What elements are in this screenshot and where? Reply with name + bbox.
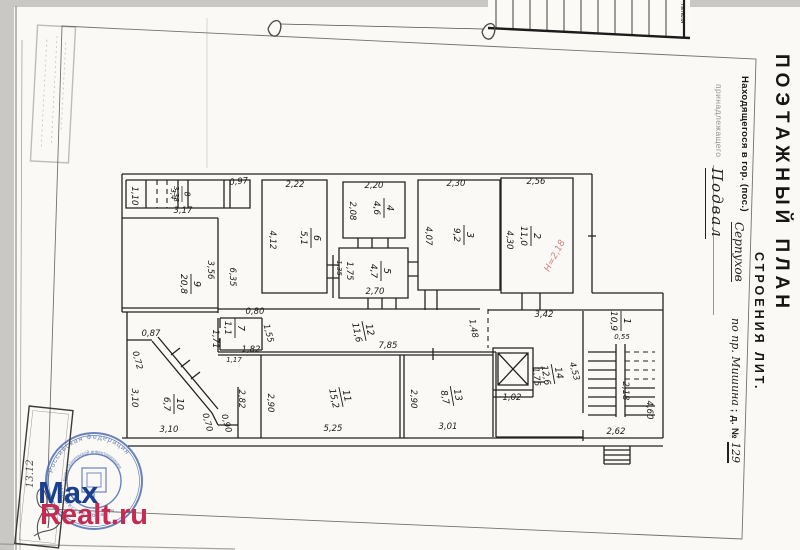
dimension-label: 3,10 — [160, 425, 179, 435]
dimension-label: Н=2,18 — [543, 238, 568, 273]
svg-text:2: 2 — [531, 233, 542, 239]
dimension-label: 2,20 — [365, 181, 384, 191]
watermark-line2: Realt.ru — [40, 501, 148, 530]
dimension-label: 7,85 — [379, 341, 398, 351]
dimension-label: 2,30 — [447, 179, 466, 189]
dimension-label: 4,12 — [267, 231, 277, 250]
dimension-label: 1,10 — [129, 187, 139, 206]
room-label-2: 211,0 — [518, 226, 542, 246]
svg-text:3,38: 3,38 — [172, 186, 181, 202]
location-value: Серпухов — [731, 222, 746, 282]
house-label: ; д. № — [729, 406, 740, 439]
dimension-label: 5,25 — [324, 424, 343, 434]
dimension-label: 1,75 — [344, 262, 354, 281]
room-label-5: 54,7 — [368, 261, 392, 281]
dimension-label: 0,90 — [219, 413, 234, 434]
dimension-label: 2,90 — [265, 394, 275, 413]
scanned-floorplan-page: { "document": { "title": "ПОЭТАЖНЫЙ ПЛАН… — [0, 0, 800, 550]
dimension-label: 1,17 — [226, 356, 242, 364]
dimension-label: 1,82 — [242, 345, 261, 355]
owner-label: принадлежащего — [714, 84, 724, 157]
floor-label: Подвал — [705, 168, 726, 239]
address-value: по пр. Мишина — [729, 318, 742, 406]
svg-text:3: 3 — [464, 232, 475, 238]
dimension-label: 4,60 — [644, 401, 654, 420]
svg-text:20,8: 20,8 — [178, 274, 188, 294]
room-label-4: 44,6 — [371, 198, 395, 218]
dimension-label: 4,53 — [567, 361, 582, 382]
dimension-label: 2,90 — [408, 390, 418, 409]
house-value: 129 — [727, 442, 742, 463]
dimension-label: 1,71 — [210, 330, 220, 349]
dimension-label: 0,72 — [130, 350, 145, 371]
room-label-11: 1115,2 — [326, 385, 354, 410]
location-label: Находящегося в гор. (пос.) — [739, 76, 750, 212]
svg-text:7: 7 — [235, 325, 246, 331]
room-label-9: 920,8 — [178, 274, 202, 294]
svg-text:4: 4 — [384, 205, 395, 211]
svg-text:4,7: 4,7 — [368, 264, 378, 279]
dimension-label: 0,87 — [142, 329, 162, 339]
room-label-10: 106,7 — [161, 394, 185, 414]
dimension-label: 0,80 — [246, 307, 265, 317]
dimension-label: 0,97 — [229, 176, 249, 188]
dimension-label: 3,42 — [535, 310, 554, 320]
dimension-label: 1,02 — [503, 393, 522, 403]
svg-text:9: 9 — [191, 281, 202, 287]
svg-text:1: 1 — [621, 318, 632, 324]
dimension-label: 2,56 — [527, 177, 547, 187]
drawing-frame — [47, 26, 756, 539]
svg-text:8: 8 — [182, 192, 191, 197]
svg-text:10: 10 — [174, 398, 185, 410]
svg-text:11,6: 11,6 — [349, 322, 363, 344]
svg-text:8,7: 8,7 — [438, 389, 450, 405]
svg-text:5: 5 — [381, 268, 392, 274]
floor-plan: 1,103,40,973,173,566,352,224,122,202,081… — [122, 174, 663, 464]
dimension-label: 4,30 — [504, 231, 514, 250]
underlying-table-strip: гателя — [488, 0, 690, 38]
room-label-12: 1211,6 — [349, 319, 377, 344]
svg-text:5,1: 5,1 — [298, 231, 308, 245]
dimension-label: 2,18 — [620, 382, 630, 402]
room-label-6: 65,1 — [298, 228, 322, 248]
dimension-label: 3,10 — [129, 389, 139, 408]
dimension-label: 4,07 — [423, 227, 433, 247]
svg-text:11,0: 11,0 — [518, 226, 528, 246]
dimension-label: 3,56 — [205, 261, 215, 281]
paper-curl-marks — [268, 21, 495, 40]
strip-cell-text: гателя — [679, 4, 686, 24]
dimension-label: 6,35 — [227, 268, 237, 287]
room-label-13: 138,7 — [437, 384, 464, 408]
dimension-label: 0,70 — [200, 412, 215, 433]
dimension-label: 2,22 — [286, 180, 305, 190]
dimension-label: 2,08 — [347, 202, 357, 222]
room-label-3: 39,2 — [451, 225, 475, 245]
svg-text:6,7: 6,7 — [161, 397, 171, 412]
dimension-label: 3,17 — [174, 206, 194, 216]
room-label-1: 110,9 — [608, 311, 632, 331]
svg-text:10,9: 10,9 — [608, 311, 618, 331]
dimension-label: 3,01 — [439, 422, 458, 432]
dimension-label: 0,55 — [614, 333, 630, 341]
svg-text:1,1: 1,1 — [222, 321, 232, 335]
address-line: по пр. Мишина ; д. № 129 — [729, 318, 742, 463]
scan-graphics: гателя 1,103,40,973,173,566,352,224,122,… — [0, 0, 800, 550]
room-label-7: 71,1 — [222, 318, 246, 338]
dimension-label: 1,55 — [261, 323, 276, 344]
dimension-label: 2,62 — [607, 427, 626, 437]
svg-text:6: 6 — [311, 235, 322, 241]
svg-text:9,2: 9,2 — [451, 228, 461, 243]
page-title: ПОЭТАЖНЫЙ ПЛАН — [770, 54, 792, 313]
dimension-label: 1,48 — [466, 318, 479, 339]
dimension-label: 1,35 — [335, 260, 343, 276]
handwritten-date: 13.12 — [25, 459, 36, 488]
room-label-14: 1412,6 — [538, 362, 565, 386]
page-subtitle: СТРОЕНИЯ ЛИТ. — [752, 252, 766, 392]
svg-text:15,2: 15,2 — [326, 388, 340, 410]
dimension-label: 2,82 — [236, 390, 246, 409]
svg-text:4,6: 4,6 — [371, 201, 381, 216]
dimension-label: 2,70 — [366, 287, 385, 297]
faint-stamp-box — [30, 25, 75, 163]
